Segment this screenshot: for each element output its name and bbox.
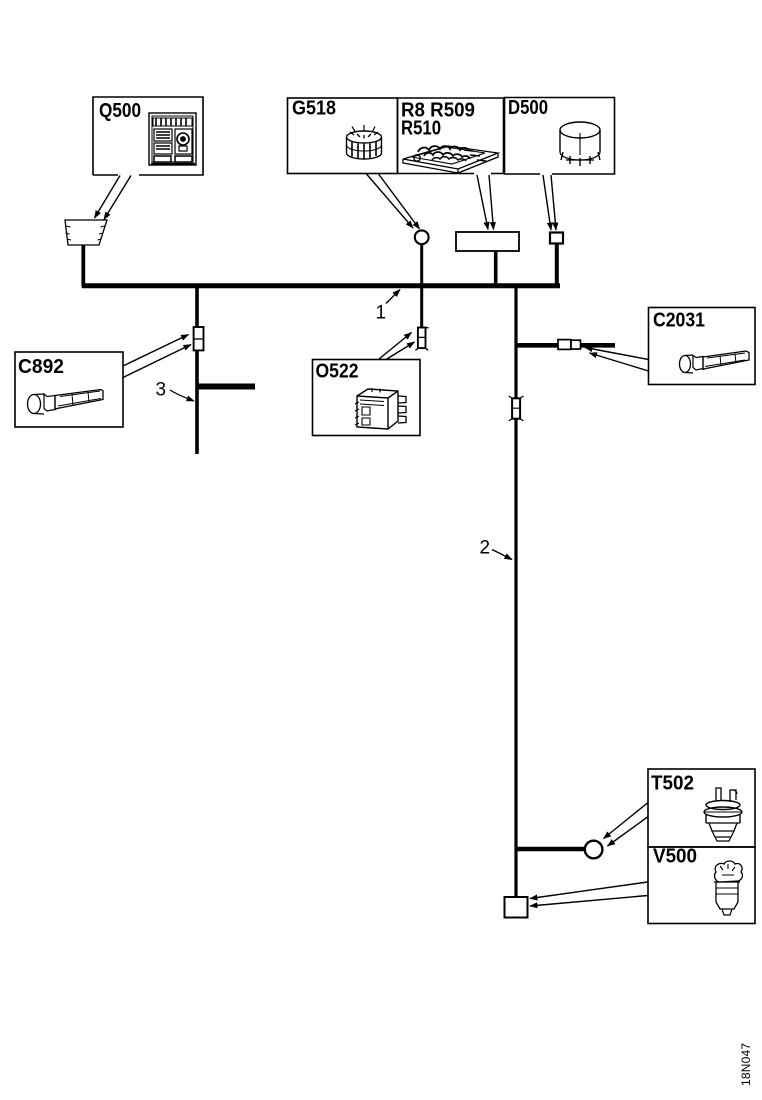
svg-text:C892: C892 <box>18 355 64 378</box>
svg-text:C2031: C2031 <box>653 309 705 332</box>
svg-text:1: 1 <box>376 303 387 324</box>
svg-text:O522: O522 <box>316 360 359 383</box>
svg-text:18N047: 18N047 <box>739 1043 753 1086</box>
svg-text:R510: R510 <box>401 117 441 140</box>
svg-text:2: 2 <box>480 538 491 559</box>
svg-text:3: 3 <box>156 380 167 401</box>
svg-text:D500: D500 <box>508 96 548 119</box>
svg-text:V500: V500 <box>653 845 697 868</box>
svg-text:G518: G518 <box>292 97 336 120</box>
svg-text:T502: T502 <box>651 772 694 795</box>
svg-text:Q500: Q500 <box>99 99 141 122</box>
